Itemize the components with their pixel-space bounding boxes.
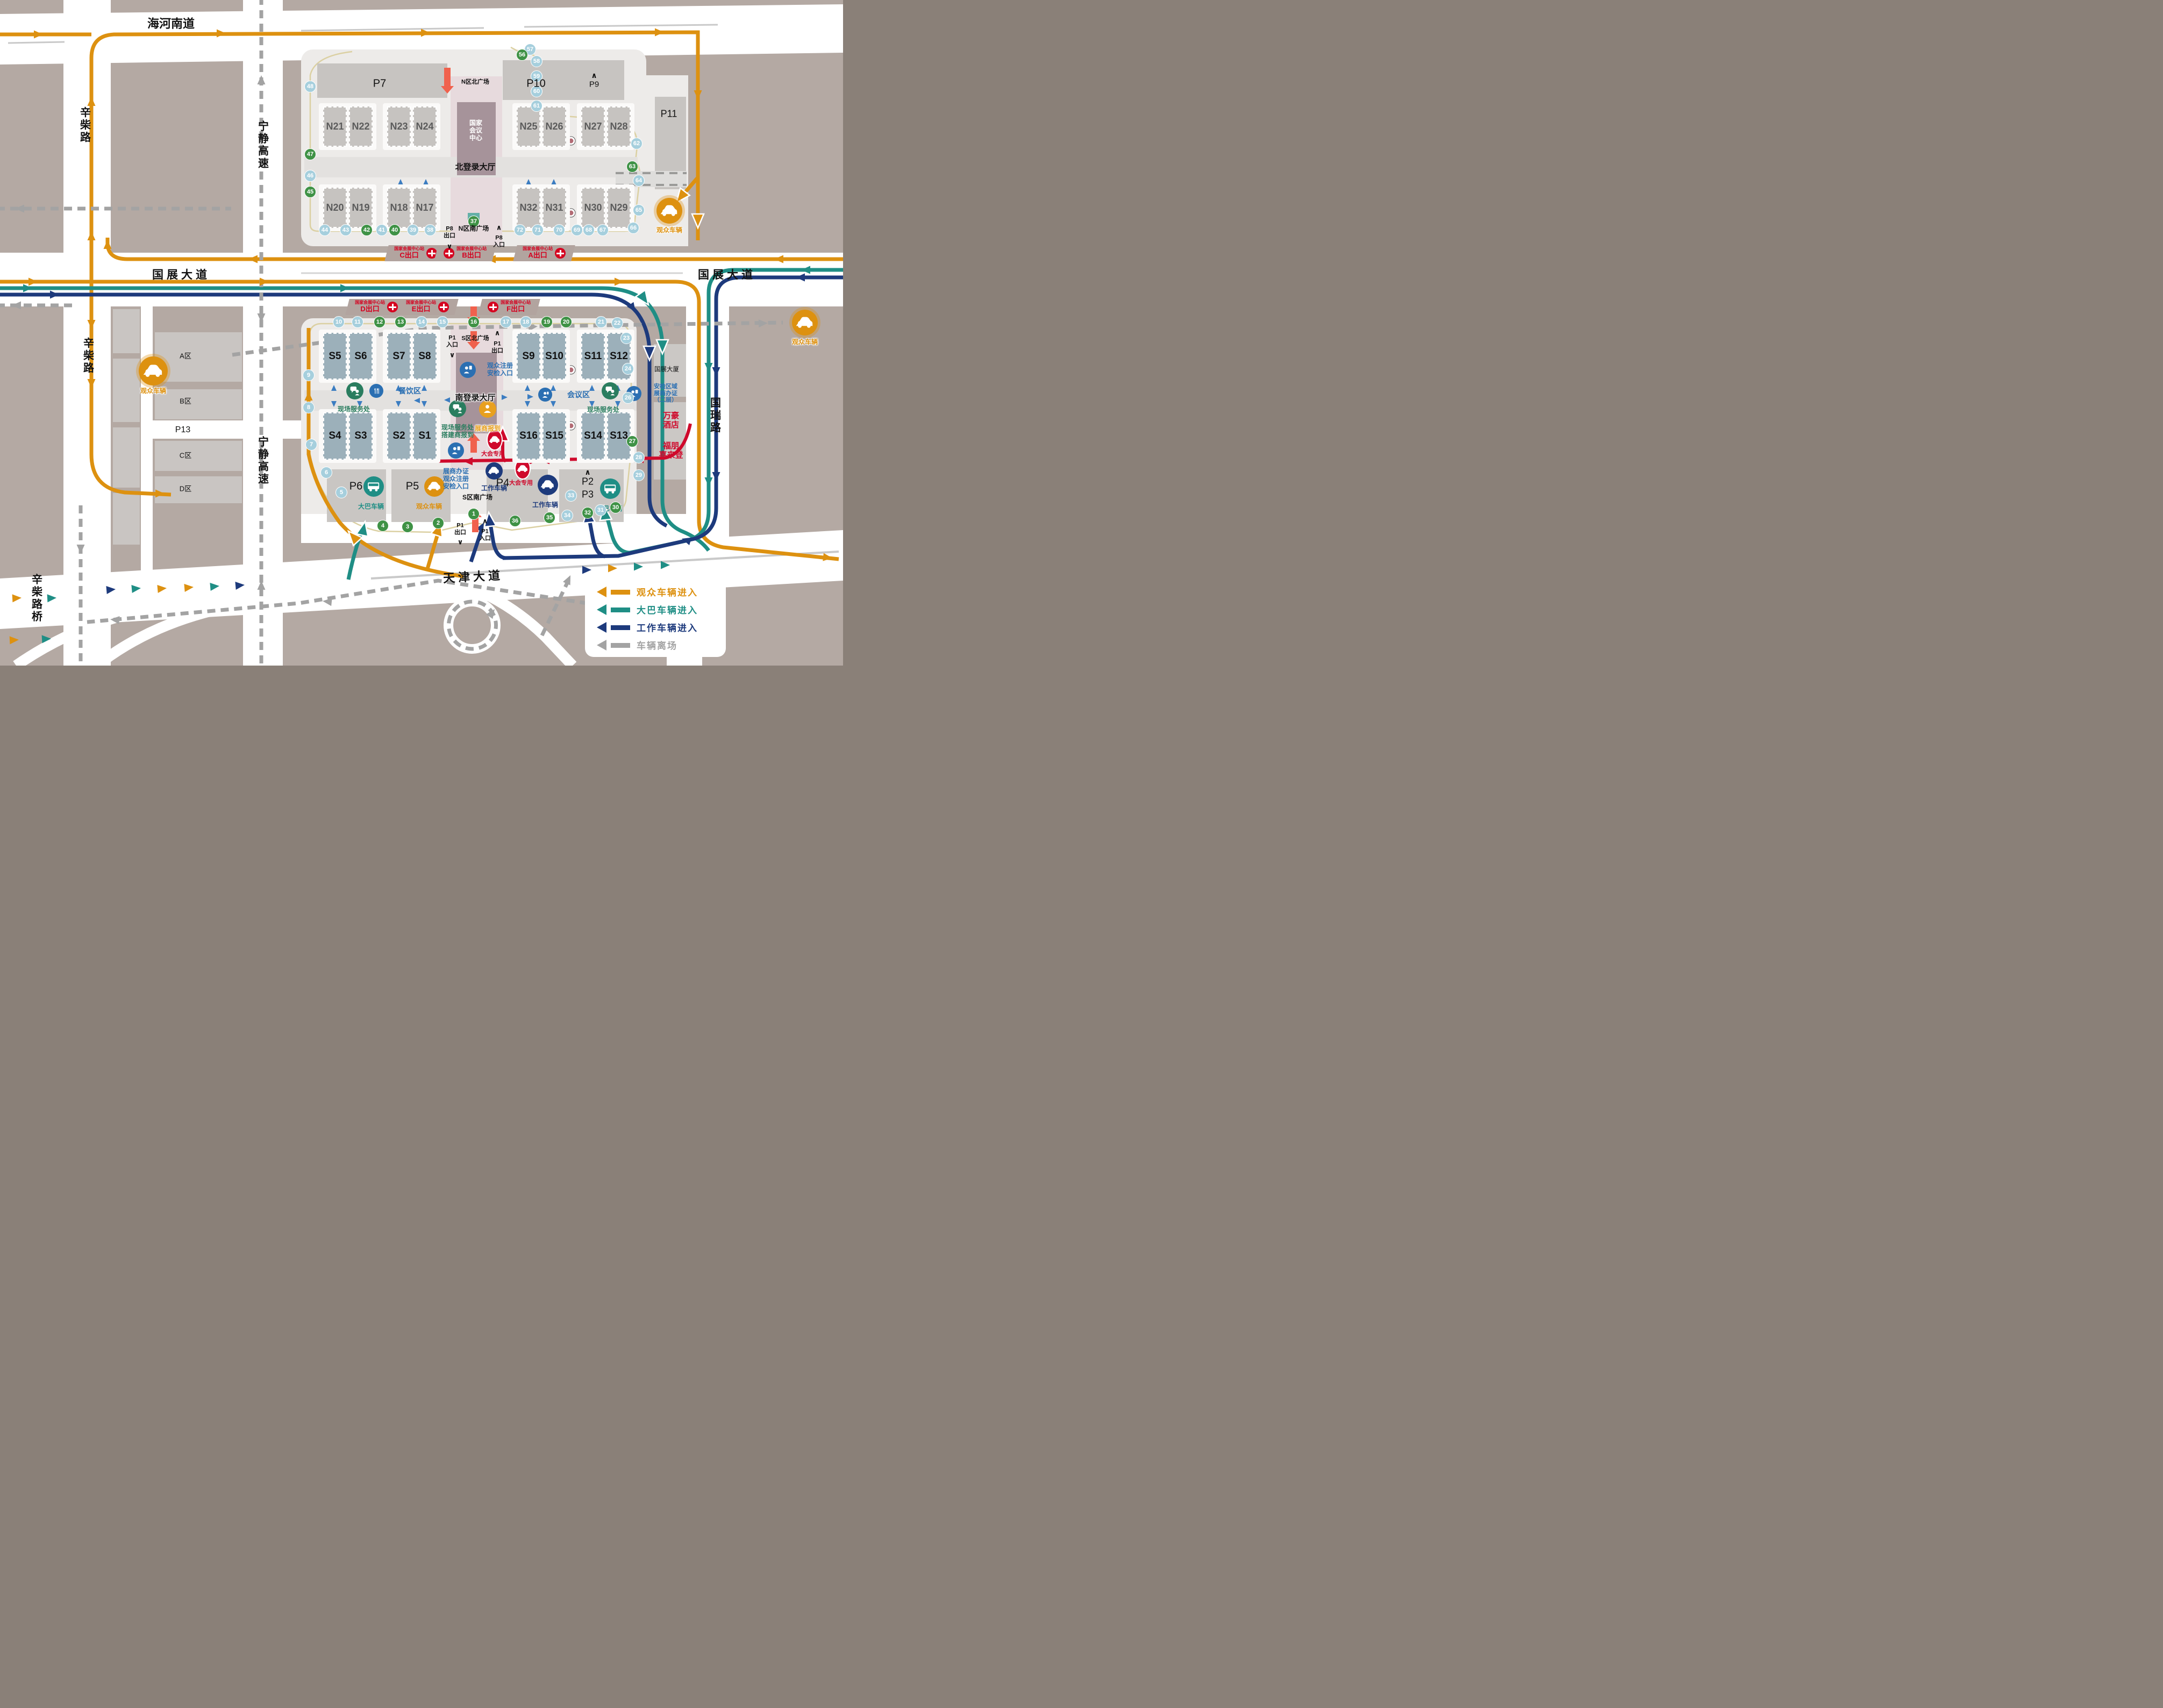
work-vehicles-p4-label: 工作车辆 xyxy=(532,502,558,509)
gate-72: 72 xyxy=(514,224,526,236)
registration-south-label: 展商办证 观众注册 安检入口 xyxy=(443,468,469,490)
legend-label: 大巴车辆进入 xyxy=(637,603,698,616)
exhibitor-checkin-label: 展商报到 xyxy=(475,425,501,433)
n-north-plaza: N区北广场 xyxy=(461,79,489,86)
work-vehicles-p1-icon xyxy=(488,464,500,477)
gate-39: 39 xyxy=(407,224,419,236)
metro-exit-label: F出口 xyxy=(501,305,531,313)
road-xinchailu-s: 辛柴路 xyxy=(81,338,94,375)
gate-36: 36 xyxy=(509,515,521,527)
gate-34: 34 xyxy=(561,510,573,521)
p8-exit: P8 出口 xyxy=(444,225,455,239)
gate-26: 26 xyxy=(622,392,634,404)
legend-arrow-icon xyxy=(597,624,631,631)
gate-65: 65 xyxy=(633,204,645,216)
bus-vehicles-p6-label: 大巴车辆 xyxy=(358,503,384,511)
gate-28: 28 xyxy=(633,452,645,463)
hall-N20: N20 xyxy=(323,188,347,228)
work-vehicles-p1 xyxy=(486,462,503,480)
gate-58: 58 xyxy=(531,55,542,67)
work-vehicles-p4 xyxy=(538,475,558,495)
gate-6: 6 xyxy=(320,467,332,478)
visitor-vehicles-p5 xyxy=(424,476,445,497)
metro-exit-label: B出口 xyxy=(456,252,487,259)
visitor-vehicles-p11-icon xyxy=(660,202,679,220)
hall-N31: N31 xyxy=(542,188,566,228)
hall-S2: S2 xyxy=(387,412,411,460)
gate-61: 61 xyxy=(531,100,542,112)
gate-41: 41 xyxy=(376,224,388,236)
hall-S7: S7 xyxy=(387,333,411,380)
hall-N30: N30 xyxy=(581,188,605,228)
p1-entry-n: P1 入口 xyxy=(446,334,458,348)
service-desk-center-label: 现场服务处 搭建商报到 xyxy=(441,424,474,439)
service-desk-east xyxy=(602,382,619,399)
dining-area-label: 餐饮区 xyxy=(398,387,421,395)
metro-logo-icon xyxy=(555,248,566,259)
p1-entry-n-chevron: ∨ xyxy=(449,352,455,360)
security-badging-east-label: 安检区域 展商办证 （二层） xyxy=(654,383,677,404)
hall-N26: N26 xyxy=(542,106,566,147)
legend-label: 观众车辆进入 xyxy=(637,585,698,598)
legend-item-w: 工作车辆进入 xyxy=(597,620,698,634)
north-registration-hall: 北登录大厅 xyxy=(455,162,495,171)
hall-S9: S9 xyxy=(517,333,540,380)
dining-area xyxy=(369,384,383,398)
hall-S6: S6 xyxy=(349,333,373,380)
parking-p2: P2 xyxy=(582,476,594,488)
hall-S8: S8 xyxy=(413,333,437,380)
hall-N25: N25 xyxy=(517,106,540,147)
visitor-vehicles-p11 xyxy=(656,198,682,224)
convention-only-1-label: 大会专用 xyxy=(481,451,505,458)
p1-exit-s-chevron: ∨ xyxy=(458,539,463,547)
hall-N28: N28 xyxy=(607,106,631,147)
hall-S15: S15 xyxy=(542,412,566,460)
road-xinchailu-n: 辛柴路 xyxy=(78,107,90,144)
service-desk-east-icon xyxy=(604,384,616,397)
p1-exit-n: P1 出口 xyxy=(491,340,503,354)
service-desk-west xyxy=(346,382,363,399)
gate-59: 59 xyxy=(531,70,542,82)
legend-label: 车辆离场 xyxy=(637,638,677,652)
gate-5: 5 xyxy=(335,487,347,498)
legend-item-o: 观众车辆进入 xyxy=(597,585,698,598)
gate-32: 32 xyxy=(582,507,594,519)
gate-35: 35 xyxy=(544,512,555,524)
visitor-vehicles-west-icon xyxy=(143,361,164,382)
visitor-vehicles-p11-label: 观众车辆 xyxy=(656,227,682,234)
marriott-hotel: 万豪 酒店 xyxy=(663,411,679,430)
gate-62: 62 xyxy=(631,138,643,149)
metro-logo-icon xyxy=(387,302,398,312)
registration-south xyxy=(448,442,464,459)
p1-exit-n-chevron: ∧ xyxy=(495,330,501,338)
legend-item-t: 大巴车辆进入 xyxy=(597,603,698,616)
road-ningjinggaosu-s: 宁静高速 xyxy=(256,436,268,485)
visitor-registration-north-icon xyxy=(462,364,474,376)
gate-64: 64 xyxy=(633,175,645,187)
gate-37: 37 xyxy=(468,216,480,227)
p1-entry-s-chevron: ∧ xyxy=(482,518,488,526)
gate-1: 1 xyxy=(468,508,480,520)
gate-60: 60 xyxy=(531,85,542,97)
gate-11: 11 xyxy=(352,316,363,328)
metro-exit-label: E出口 xyxy=(406,305,436,313)
zone-a: A区 xyxy=(180,353,191,361)
gate-3: 3 xyxy=(402,521,413,533)
visitor-vehicles-east-label: 观众车辆 xyxy=(792,339,818,346)
gate-56: 56 xyxy=(516,49,528,61)
hall-N21: N21 xyxy=(323,106,347,147)
gate-67: 67 xyxy=(597,224,609,236)
gate-2: 2 xyxy=(432,517,444,529)
hall-S13: S13 xyxy=(607,412,631,460)
visitor-vehicles-p5-icon xyxy=(427,479,441,494)
gate-40: 40 xyxy=(389,224,401,236)
bus-vehicles-p2p3-icon xyxy=(603,481,617,496)
gate-9: 9 xyxy=(303,369,315,381)
gate-38: 38 xyxy=(424,224,436,236)
gate-33: 33 xyxy=(565,490,577,502)
parking-p5: P5 xyxy=(406,481,419,493)
gate-29: 29 xyxy=(633,469,645,481)
legend-arrow-icon xyxy=(597,606,631,613)
gate-68: 68 xyxy=(583,224,595,236)
dining-area-icon xyxy=(372,386,382,396)
hall-S1: S1 xyxy=(413,412,437,460)
exit-F: 国家会展中心站F出口 xyxy=(478,299,540,315)
gate-45: 45 xyxy=(304,186,316,198)
gate-14: 14 xyxy=(416,316,427,328)
meeting-area xyxy=(538,388,552,402)
meeting-area-icon xyxy=(540,390,551,400)
gate-17: 17 xyxy=(500,316,512,328)
metro-exit-label: C出口 xyxy=(394,252,424,259)
road-guozhandadao-w: 国展大道 xyxy=(152,269,210,282)
gate-20: 20 xyxy=(560,316,572,328)
hall-N32: N32 xyxy=(517,188,540,228)
hall-N17: N17 xyxy=(413,188,437,228)
road-ningjinggaosu-n: 宁静高速 xyxy=(256,120,268,170)
visitor-vehicles-east xyxy=(792,310,818,335)
gate-42: 42 xyxy=(361,224,373,236)
metro-logo-icon xyxy=(444,248,454,259)
gate-27: 27 xyxy=(626,435,638,447)
service-desk-center-icon xyxy=(451,402,463,415)
service-desk-center xyxy=(449,400,466,417)
traffic-guide-map: N21N22N23N24N25N26N27N28N20N19N18N17N32N… xyxy=(0,0,843,666)
gate-19: 19 xyxy=(541,316,553,328)
visitor-vehicles-p5-label: 观众车辆 xyxy=(416,503,442,511)
hall-N24: N24 xyxy=(413,106,437,147)
exit-A: 国家会展中心站A出口 xyxy=(513,245,575,261)
meeting-area-label: 会议区 xyxy=(567,390,590,399)
exhibitor-checkin xyxy=(479,401,496,418)
map-overlay: N21N22N23N24N25N26N27N28N20N19N18N17N32N… xyxy=(0,0,843,666)
gate-46: 46 xyxy=(304,170,316,182)
road-tianjindadao: 天津大道 xyxy=(442,568,503,585)
exit-E: 国家会展中心站E出口 xyxy=(396,299,458,315)
legend-arrow-icon xyxy=(597,642,631,648)
gate-47: 47 xyxy=(304,148,316,160)
parking-p6: P6 xyxy=(349,481,362,493)
gate-43: 43 xyxy=(340,224,352,236)
hall-S3: S3 xyxy=(349,412,373,460)
metro-logo-icon xyxy=(488,302,498,312)
metro-logo-icon xyxy=(438,302,449,312)
gate-18: 18 xyxy=(520,316,532,328)
road-xinchailuqiao: 辛柴路桥 xyxy=(30,574,42,623)
gate-8: 8 xyxy=(303,402,315,413)
parking-p11: P11 xyxy=(661,109,677,120)
hall-N18: N18 xyxy=(387,188,411,228)
parking-p3: P3 xyxy=(582,489,594,501)
gate-24: 24 xyxy=(622,363,634,375)
zone-c: C区 xyxy=(180,452,191,460)
gate-4: 4 xyxy=(377,520,389,532)
hall-S5: S5 xyxy=(323,333,347,380)
parking-p4: P4 xyxy=(496,477,509,490)
gate-70: 70 xyxy=(553,224,565,236)
bus-vehicles-p6 xyxy=(363,476,384,497)
metro-exit-label: D出口 xyxy=(355,305,385,313)
hall-S11: S11 xyxy=(581,333,605,380)
hall-S10: S10 xyxy=(542,333,566,380)
road-guoruilu: 国瑞路 xyxy=(708,397,720,434)
gate-63: 63 xyxy=(626,161,638,173)
visitor-vehicles-west xyxy=(139,356,168,385)
gate-71: 71 xyxy=(532,224,544,236)
hall-S14: S14 xyxy=(581,412,605,460)
visitor-vehicles-west-label: 观众车辆 xyxy=(140,388,166,395)
gate-22: 22 xyxy=(611,317,623,329)
zone-d: D区 xyxy=(180,485,191,494)
hall-N27: N27 xyxy=(581,106,605,147)
convention-only-2-label: 大会专用 xyxy=(509,480,533,487)
gate-15: 15 xyxy=(437,316,448,328)
hall-N29: N29 xyxy=(607,188,631,228)
hall-N22: N22 xyxy=(349,106,373,147)
exit-B: 国家会展中心站B出口 xyxy=(434,245,496,261)
s-south-plaza: S区南广场 xyxy=(462,494,492,502)
p8-entry-chevron: ∧ xyxy=(496,224,502,232)
gate-16: 16 xyxy=(468,316,480,328)
parking-p13: P13 xyxy=(175,425,190,435)
national-convention-center: 国家 会议 中心 xyxy=(469,119,482,141)
visitor-vehicles-east-icon xyxy=(796,313,815,332)
parking-p2-chevron: ∧ xyxy=(584,468,590,476)
hall-S16: S16 xyxy=(517,412,540,460)
visitor-registration-north-label: 观众注册 安检入口 xyxy=(487,362,513,377)
gate-7: 7 xyxy=(305,439,317,451)
gate-31: 31 xyxy=(595,504,606,516)
parking-p9-chevron: ∧ xyxy=(591,71,597,80)
hall-S4: S4 xyxy=(323,412,347,460)
bus-vehicles-p2p3 xyxy=(600,478,620,499)
gate-13: 13 xyxy=(395,316,406,328)
zone-b: B区 xyxy=(180,398,191,406)
work-vehicles-p1-label: 工作车辆 xyxy=(481,485,507,492)
gate-66: 66 xyxy=(627,222,639,234)
s-north-plaza: S区北广场 xyxy=(461,335,489,342)
guozhan-tower: 国展大厦 xyxy=(654,366,679,373)
legend-arrow-icon xyxy=(597,589,631,595)
p1-exit-s: P1 出口 xyxy=(454,522,466,535)
exhibitor-checkin-icon xyxy=(481,403,494,415)
work-vehicles-p4-icon xyxy=(540,477,555,492)
hall-N19: N19 xyxy=(349,188,373,228)
bus-vehicles-p6-icon xyxy=(366,479,381,494)
road-guozhandadao-e: 国展大道 xyxy=(698,269,756,282)
gate-21: 21 xyxy=(595,316,607,328)
registration-south-icon xyxy=(450,445,462,456)
gate-23: 23 xyxy=(620,332,632,344)
gate-30: 30 xyxy=(610,502,622,513)
hall-N23: N23 xyxy=(387,106,411,147)
gate-69: 69 xyxy=(571,224,583,236)
p1-entry-s: P1 入口 xyxy=(479,528,491,541)
route-legend: 观众车辆进入大巴车辆进入工作车辆进入车辆离场 xyxy=(585,576,726,657)
road-haihenandao: 海河南道 xyxy=(147,17,195,30)
legend-label: 工作车辆进入 xyxy=(637,620,698,634)
gate-48: 48 xyxy=(304,81,316,92)
parking-p9: P9 xyxy=(589,80,599,89)
parking-p7: P7 xyxy=(373,78,386,90)
legend-item-g: 车辆离场 xyxy=(597,638,677,652)
gate-10: 10 xyxy=(333,316,345,328)
visitor-registration-north xyxy=(460,362,476,378)
metro-exit-label: A出口 xyxy=(523,252,553,259)
four-points-sheraton: 福朋 喜来登 xyxy=(659,441,683,460)
gate-12: 12 xyxy=(374,316,386,328)
gate-44: 44 xyxy=(319,224,331,236)
service-desk-west-icon xyxy=(348,384,361,397)
